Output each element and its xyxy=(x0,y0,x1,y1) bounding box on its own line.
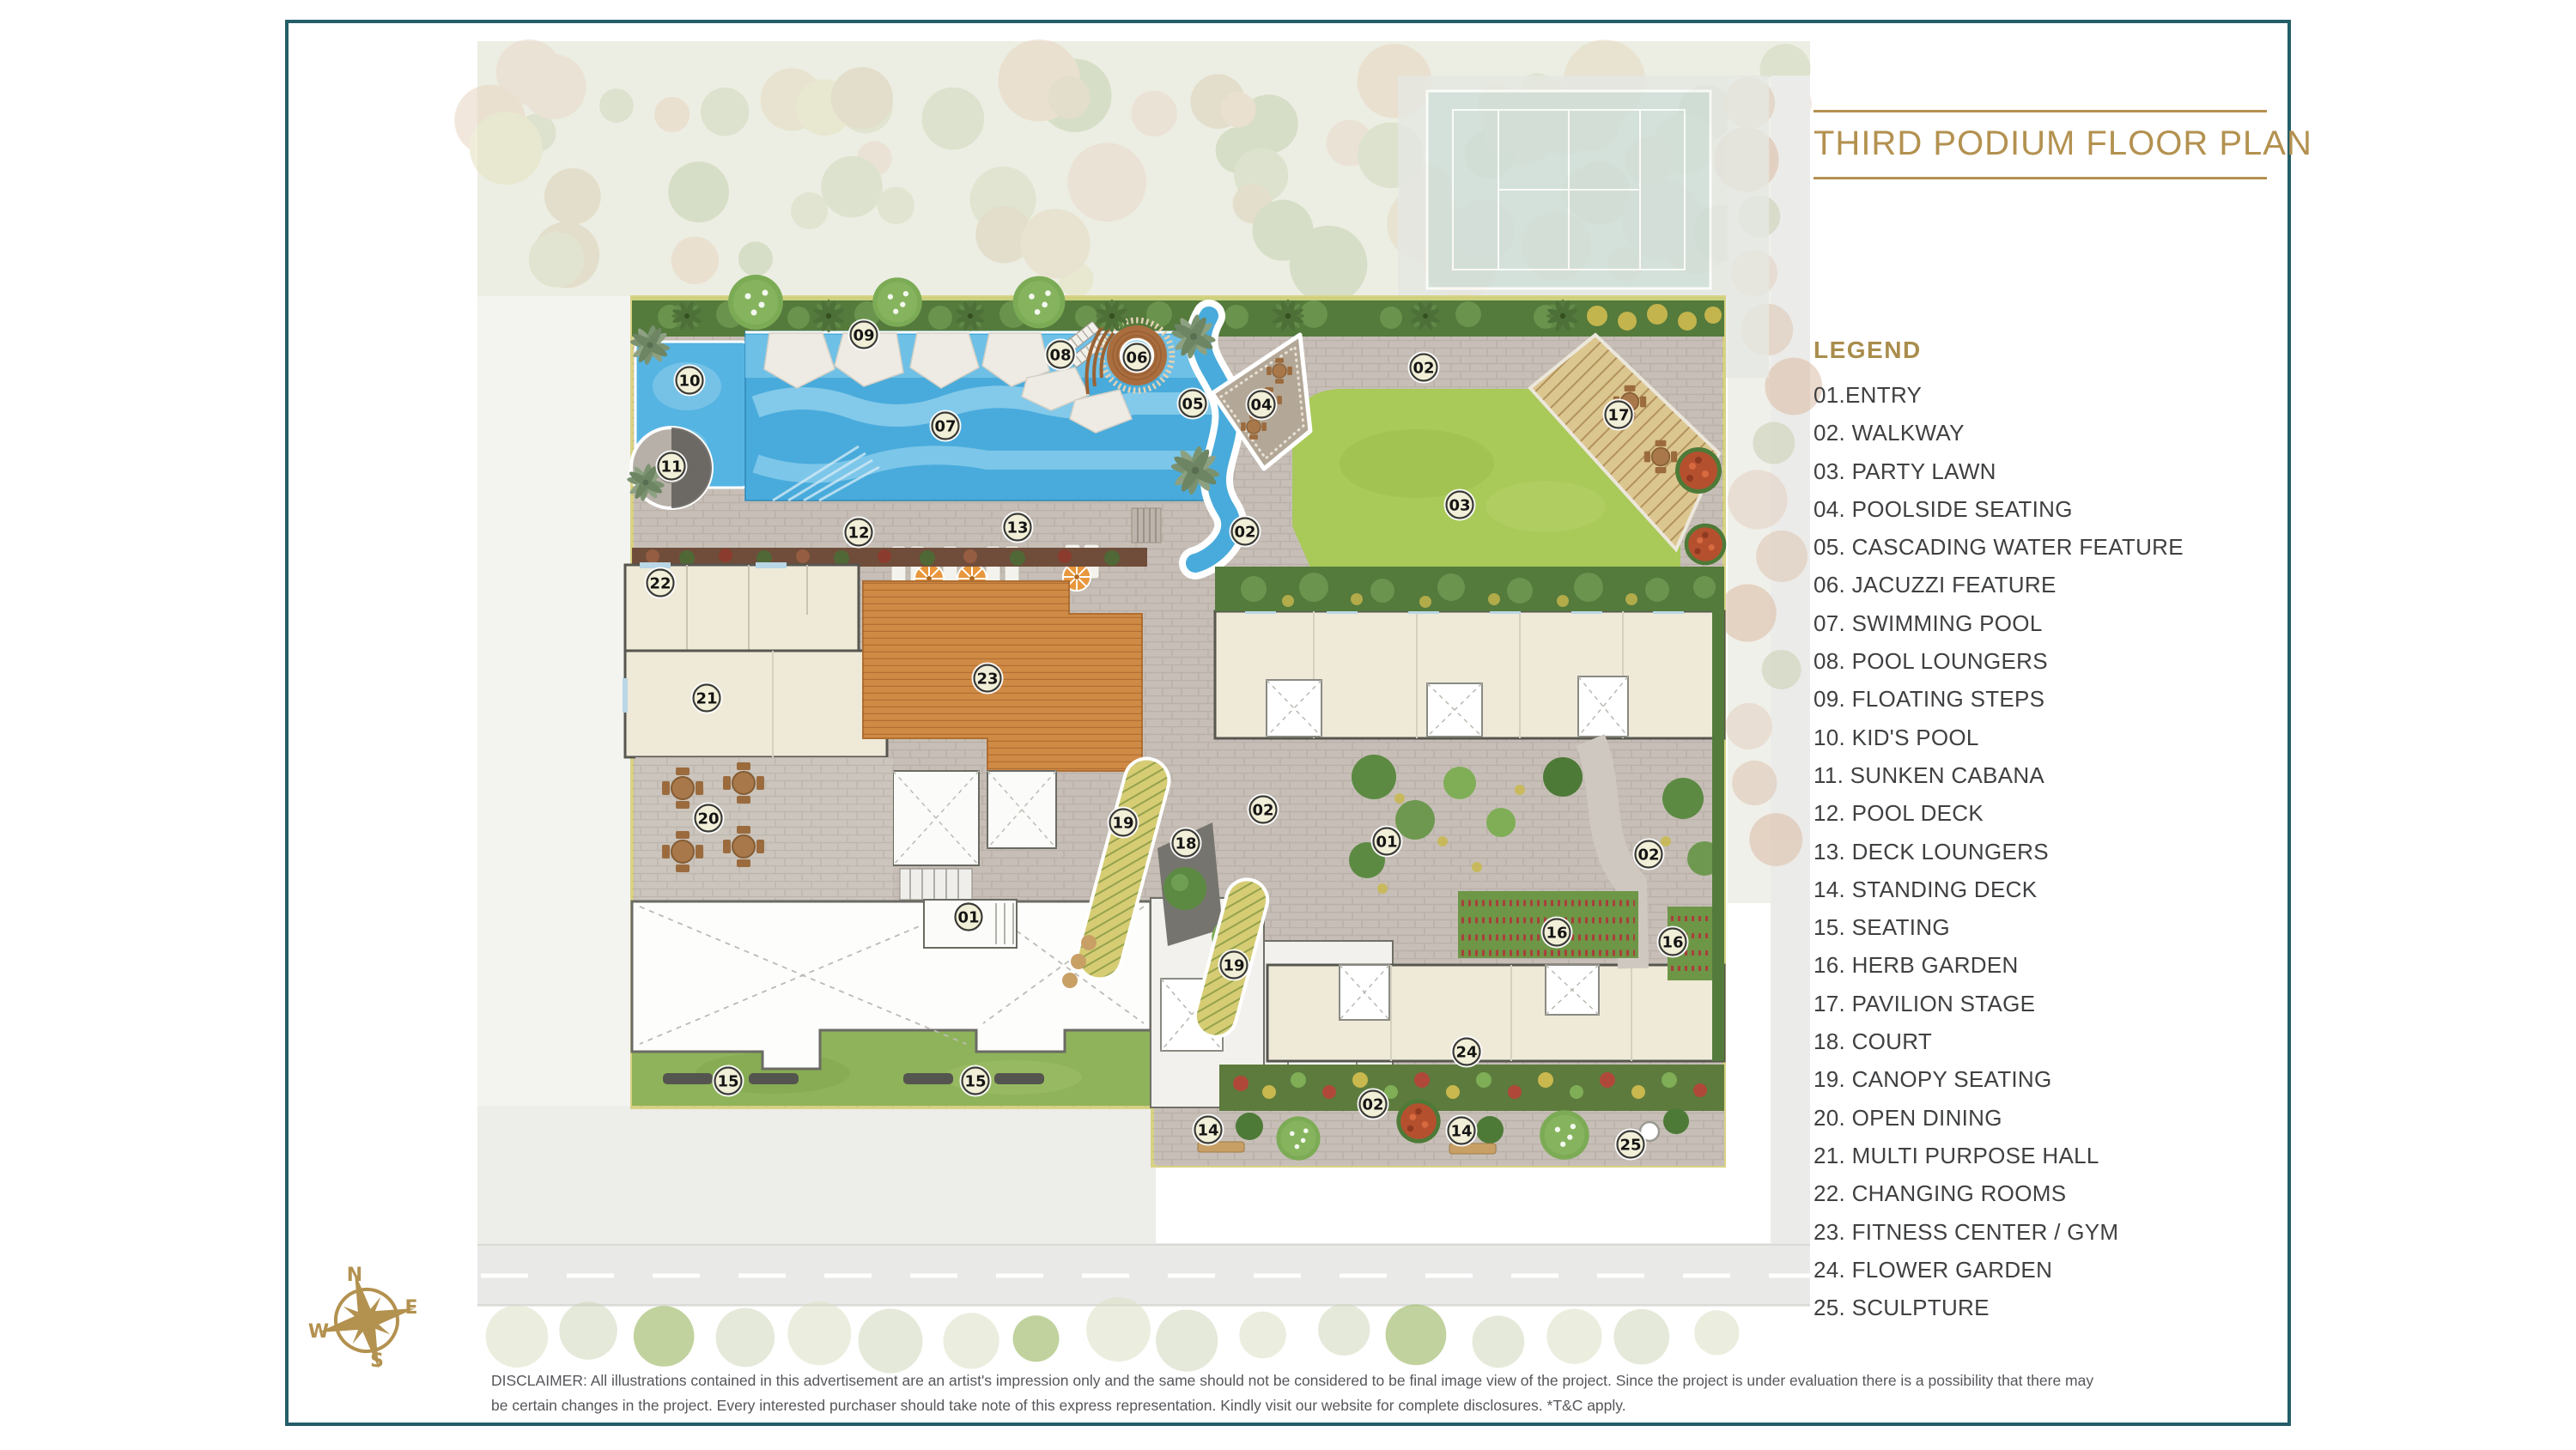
disclaimer: DISCLAIMER: All illustrations contained … xyxy=(491,1368,2148,1418)
svg-text:12: 12 xyxy=(848,525,869,543)
legend-item: 02. WALKWAY xyxy=(1814,414,2294,452)
svg-text:01: 01 xyxy=(957,909,979,927)
plan-marker-25: 25 xyxy=(1615,1129,1647,1161)
legend-item: 22. CHANGING ROOMS xyxy=(1814,1174,2294,1212)
legend-item: 03. PARTY LAWN xyxy=(1814,452,2294,490)
plan-marker-14: 14 xyxy=(1193,1114,1224,1146)
legend-list: 01.ENTRY02. WALKWAY03. PARTY LAWN04. POO… xyxy=(1814,376,2294,1326)
svg-text:03: 03 xyxy=(1449,497,1470,515)
plan-marker-02: 02 xyxy=(1230,516,1261,548)
svg-text:23: 23 xyxy=(976,670,998,689)
plan-marker-16: 16 xyxy=(1657,926,1689,958)
svg-text:07: 07 xyxy=(934,418,956,436)
disclaimer-line-1: DISCLAIMER: All illustrations contained … xyxy=(491,1372,2093,1389)
svg-text:11: 11 xyxy=(660,458,682,476)
tower-footprint-east xyxy=(1215,608,1724,738)
page: 0101020202020203040506070809101112131414… xyxy=(0,0,2576,1450)
legend-item: 07. SWIMMING POOL xyxy=(1814,604,2294,642)
plan-marker-04: 04 xyxy=(1246,389,1278,421)
plan-marker-01: 01 xyxy=(1371,826,1403,858)
legend-item: 13. DECK LOUNGERS xyxy=(1814,833,2294,871)
svg-text:02: 02 xyxy=(1637,846,1659,865)
svg-text:15: 15 xyxy=(964,1073,986,1091)
plan-marker-15: 15 xyxy=(960,1065,992,1097)
plan-marker-07: 07 xyxy=(930,410,962,442)
plan-marker-08: 08 xyxy=(1045,339,1077,371)
legend-item: 18. COURT xyxy=(1814,1022,2294,1060)
plan-marker-01: 01 xyxy=(953,901,985,933)
plan-marker-19: 19 xyxy=(1108,807,1139,839)
svg-text:02: 02 xyxy=(1413,360,1434,378)
title-block: THIRD PODIUM FLOOR PLAN xyxy=(1814,110,2267,179)
plan-marker-10: 10 xyxy=(674,365,706,397)
svg-text:17: 17 xyxy=(1607,407,1629,425)
plan-marker-03: 03 xyxy=(1444,489,1476,521)
svg-text:13: 13 xyxy=(1006,519,1028,537)
plan-marker-15: 15 xyxy=(713,1065,744,1097)
legend-item: 11. SUNKEN CABANA xyxy=(1814,756,2294,794)
svg-text:10: 10 xyxy=(678,373,700,391)
svg-text:09: 09 xyxy=(853,327,874,345)
svg-text:16: 16 xyxy=(1662,934,1683,952)
legend-item: 12. POOL DECK xyxy=(1814,794,2294,832)
legend-item: 20. OPEN DINING xyxy=(1814,1099,2294,1137)
legend-item: 05. CASCADING WATER FEATURE xyxy=(1814,528,2294,566)
plan-marker-24: 24 xyxy=(1451,1036,1483,1068)
svg-text:02: 02 xyxy=(1234,524,1255,542)
plan-marker-14: 14 xyxy=(1446,1115,1478,1147)
svg-text:19: 19 xyxy=(1223,957,1244,975)
plan-marker-20: 20 xyxy=(693,803,725,834)
legend-item: 10. KID'S POOL xyxy=(1814,719,2294,756)
legend-heading: LEGEND xyxy=(1814,337,2294,364)
disclaimer-line-2: be certain changes in the project. Every… xyxy=(491,1397,1626,1414)
svg-text:05: 05 xyxy=(1182,396,1203,414)
flower-garden xyxy=(1219,1065,1724,1111)
legend-item: 06. JACUZZI FEATURE xyxy=(1814,566,2294,604)
plan-marker-18: 18 xyxy=(1170,828,1202,859)
svg-text:25: 25 xyxy=(1619,1137,1641,1155)
road xyxy=(477,1243,1810,1307)
legend-item: 09. FLOATING STEPS xyxy=(1814,680,2294,718)
plan-marker-02: 02 xyxy=(1358,1089,1389,1120)
podium xyxy=(623,275,1726,1166)
svg-text:01: 01 xyxy=(1376,834,1397,852)
plan-marker-19: 19 xyxy=(1218,949,1250,981)
svg-text:02: 02 xyxy=(1252,802,1273,820)
svg-text:21: 21 xyxy=(696,690,717,708)
compass-label-W: W xyxy=(308,1321,329,1343)
svg-text:18: 18 xyxy=(1175,835,1196,853)
plan-marker-21: 21 xyxy=(691,683,723,714)
plan-marker-02: 02 xyxy=(1633,839,1665,871)
svg-text:02: 02 xyxy=(1362,1096,1383,1114)
open-dining xyxy=(635,757,893,900)
legend: LEGEND 01.ENTRY02. WALKWAY03. PARTY LAWN… xyxy=(1814,337,2294,1326)
plan-marker-16: 16 xyxy=(1541,917,1573,949)
svg-text:08: 08 xyxy=(1049,347,1071,365)
page-title: THIRD PODIUM FLOOR PLAN xyxy=(1814,124,2267,163)
plan-marker-12: 12 xyxy=(843,517,875,549)
legend-item: 16. HERB GARDEN xyxy=(1814,946,2294,984)
svg-text:04: 04 xyxy=(1250,397,1272,415)
legend-item: 25. SCULPTURE xyxy=(1814,1289,2294,1326)
legend-item: 01.ENTRY xyxy=(1814,376,2294,414)
plan-marker-23: 23 xyxy=(972,663,1004,695)
multi-purpose-hall xyxy=(623,651,887,757)
legend-item: 21. MULTI PURPOSE HALL xyxy=(1814,1137,2294,1174)
plan-marker-13: 13 xyxy=(1002,512,1034,543)
svg-text:19: 19 xyxy=(1112,815,1133,833)
plan-marker-22: 22 xyxy=(645,567,677,599)
legend-item: 23. FITNESS CENTER / GYM xyxy=(1814,1213,2294,1251)
plan-marker-06: 06 xyxy=(1121,342,1153,373)
plan-marker-17: 17 xyxy=(1603,399,1635,431)
compass-rose: NEWS xyxy=(307,1260,428,1381)
legend-item: 15. SEATING xyxy=(1814,908,2294,946)
svg-text:14: 14 xyxy=(1450,1123,1472,1141)
plan-marker-05: 05 xyxy=(1177,388,1209,420)
svg-text:22: 22 xyxy=(649,575,671,593)
svg-text:16: 16 xyxy=(1546,925,1567,943)
legend-item: 08. POOL LOUNGERS xyxy=(1814,642,2294,680)
svg-text:20: 20 xyxy=(697,810,719,828)
plan-marker-02: 02 xyxy=(1248,794,1279,826)
compass-label-S: S xyxy=(370,1350,384,1372)
plan-marker-11: 11 xyxy=(656,451,688,482)
svg-text:14: 14 xyxy=(1197,1122,1218,1140)
compass-label-N: N xyxy=(347,1265,362,1286)
plan-marker-02: 02 xyxy=(1408,352,1440,384)
legend-item: 14. STANDING DECK xyxy=(1814,871,2294,908)
svg-text:15: 15 xyxy=(717,1073,738,1091)
compass-label-E: E xyxy=(404,1297,417,1319)
legend-item: 19. CANOPY SEATING xyxy=(1814,1060,2294,1098)
svg-text:06: 06 xyxy=(1126,349,1147,367)
tower-wing-south xyxy=(1267,965,1724,1061)
legend-item: 17. PAVILION STAGE xyxy=(1814,985,2294,1022)
svg-text:24: 24 xyxy=(1455,1044,1477,1062)
legend-item: 04. POOLSIDE SEATING xyxy=(1814,490,2294,528)
plan-marker-09: 09 xyxy=(848,319,880,351)
legend-item: 24. FLOWER GARDEN xyxy=(1814,1251,2294,1289)
